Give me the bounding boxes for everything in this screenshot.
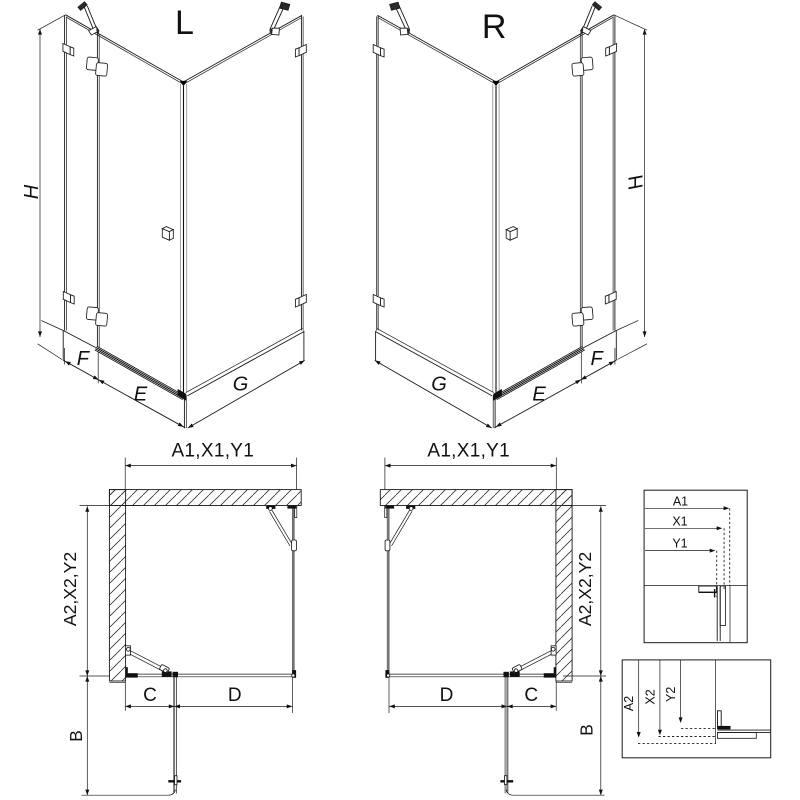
svg-text:F: F (590, 348, 604, 370)
svg-text:D: D (228, 685, 242, 706)
svg-text:A1,X1,Y1: A1,X1,Y1 (171, 441, 254, 462)
svg-text:A1,X1,Y1: A1,X1,Y1 (427, 441, 510, 462)
svg-text:X1: X1 (672, 514, 687, 528)
svg-text:E: E (134, 384, 148, 406)
svg-text:H: H (21, 184, 43, 199)
svg-text:B: B (576, 724, 596, 736)
svg-text:B: B (66, 730, 86, 742)
svg-text:L: L (175, 4, 194, 42)
svg-text:A2,X2,Y2: A2,X2,Y2 (60, 552, 80, 626)
svg-text:G: G (233, 374, 249, 396)
svg-text:C: C (524, 685, 538, 706)
svg-text:C: C (143, 685, 157, 706)
svg-text:H: H (625, 175, 647, 190)
svg-text:Y2: Y2 (664, 687, 678, 702)
svg-text:E: E (532, 384, 546, 406)
svg-text:G: G (431, 374, 447, 396)
svg-text:D: D (440, 685, 454, 706)
svg-text:R: R (482, 8, 507, 46)
svg-text:Y1: Y1 (672, 537, 687, 551)
svg-text:X2: X2 (644, 689, 658, 704)
svg-text:F: F (77, 348, 91, 370)
svg-text:A2: A2 (622, 696, 636, 711)
svg-text:A2,X2,Y2: A2,X2,Y2 (575, 552, 595, 626)
svg-text:A1: A1 (673, 494, 688, 508)
